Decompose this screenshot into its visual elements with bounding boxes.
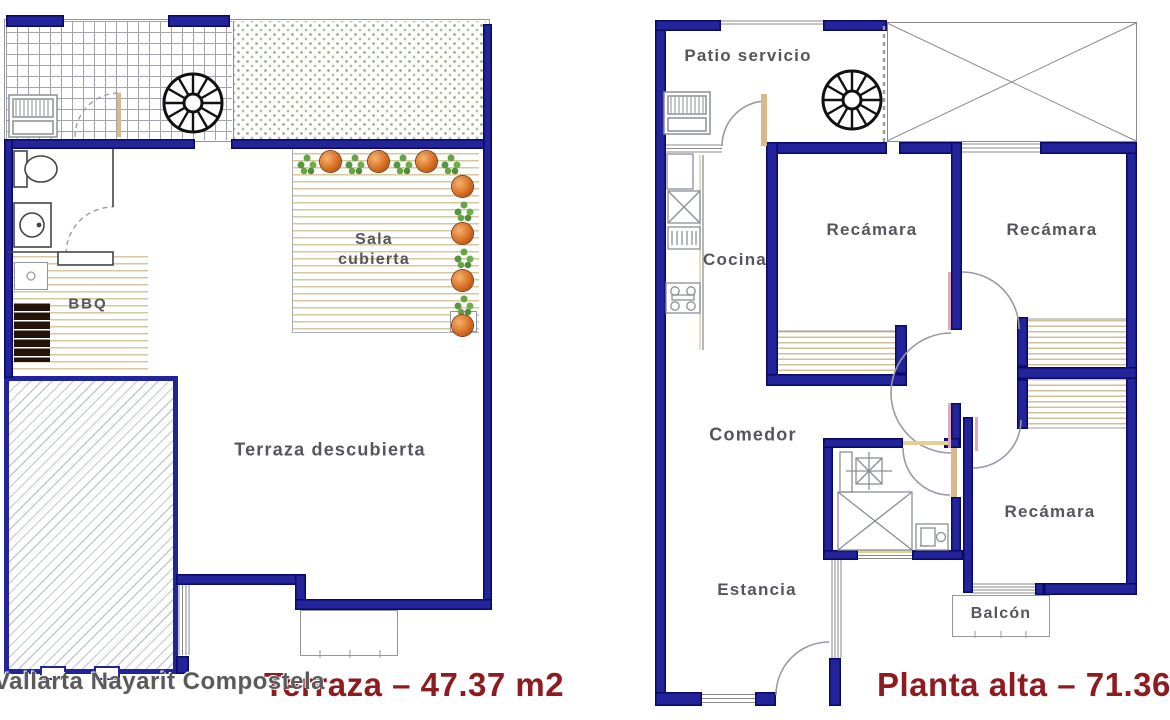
wall [823, 438, 903, 448]
wall [4, 139, 195, 149]
closet [778, 331, 895, 374]
plant-icon [453, 247, 475, 269]
plant-icon [440, 153, 462, 175]
room-label-terraza-descubierta: Terraza descubierta [234, 440, 426, 461]
plant-icon [452, 176, 473, 197]
void-open-below [887, 22, 1137, 142]
wall [655, 20, 666, 706]
wall [963, 417, 973, 593]
wall [823, 20, 887, 31]
plant-icon [344, 153, 366, 175]
floorplan-image: Sala cubierta BBQ Terraza descubierta [0, 0, 1170, 720]
room-label-recamara-3: Recámara [1005, 502, 1096, 522]
plant-icon [416, 151, 437, 172]
wall [176, 574, 306, 585]
wall [895, 325, 907, 374]
sala-line2: cubierta [338, 251, 410, 268]
bbq-sink [14, 262, 48, 290]
wall [951, 142, 962, 330]
roof-strip-outline [4, 19, 490, 142]
wall [823, 438, 833, 560]
plant-icon [296, 153, 318, 175]
wall [912, 550, 963, 560]
room-label-cocina: Cocina [703, 250, 767, 270]
wall [766, 142, 778, 386]
wall [1035, 583, 1044, 595]
room-label-estancia: Estancia [717, 580, 797, 600]
room-label-recamara-2: Recámara [1007, 220, 1098, 240]
closet [1028, 320, 1126, 367]
room-label-recamara-1: Recámara [827, 220, 918, 240]
wall [231, 139, 492, 149]
watermark: Vallarta Nayarit Compostela [0, 668, 325, 696]
closet [1028, 379, 1126, 427]
wall [1017, 317, 1028, 367]
plant-icon [452, 315, 473, 336]
plant-icon [320, 151, 341, 172]
hatched-area [4, 376, 178, 674]
wall [483, 24, 492, 606]
wall [1017, 367, 1137, 379]
wall [944, 438, 960, 448]
room-label-patio-servicio: Patio servicio [684, 46, 811, 66]
wall [168, 15, 230, 27]
room-label-comedor: Comedor [709, 425, 796, 446]
room-label-sala-cubierta: Sala cubierta [338, 230, 410, 270]
exterior-step [300, 610, 398, 656]
wall [1044, 583, 1137, 595]
wall [829, 658, 841, 706]
wall [766, 142, 887, 154]
room-label-bbq: BBQ [68, 296, 107, 313]
wall [1040, 142, 1137, 154]
wall [766, 374, 907, 386]
terraza-plan: Sala cubierta BBQ Terraza descubierta [0, 0, 585, 720]
room-label-balcon: Balcón [971, 605, 1032, 623]
wall [655, 20, 721, 31]
planta-alta-plan: Patio servicio Cocina Recámara Recámara … [585, 0, 1170, 720]
plant-icon [453, 294, 475, 316]
plant-icon [452, 270, 473, 291]
bbq-grill-icon [14, 302, 50, 362]
sala-line1: Sala [355, 231, 393, 248]
wall [4, 139, 13, 378]
wall [295, 599, 492, 610]
plant-icon [368, 151, 389, 172]
plan-title-planta-alta: Planta alta – 71.36 m [877, 666, 1170, 704]
plant-icon [453, 200, 475, 222]
wall [655, 692, 702, 706]
wall [823, 550, 858, 560]
wall [755, 692, 776, 706]
plant-icon [392, 153, 414, 175]
wall [6, 15, 64, 27]
plant-icon [452, 223, 473, 244]
wall [1017, 379, 1028, 429]
